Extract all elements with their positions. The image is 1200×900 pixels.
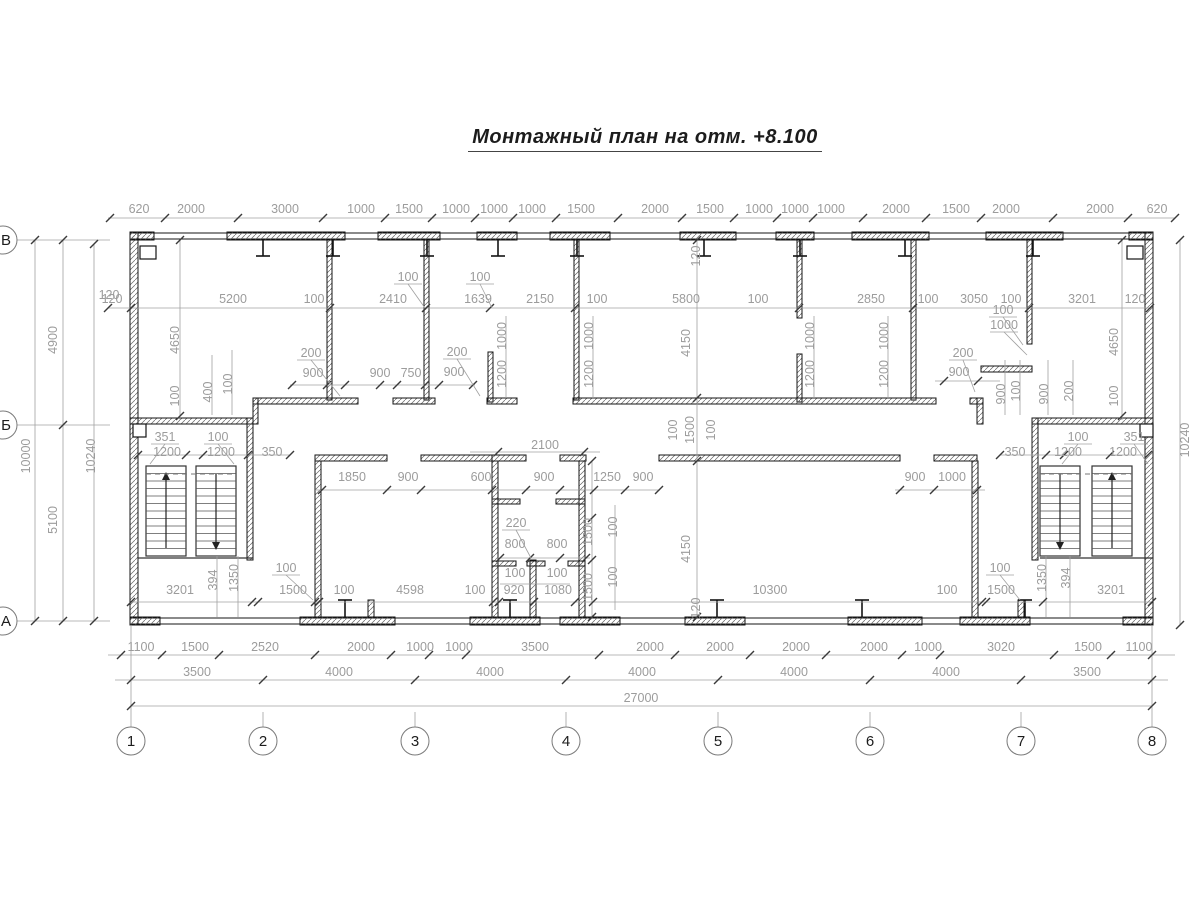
dim-label: 10000	[19, 439, 33, 474]
dim-label: 4598	[396, 583, 424, 597]
dim-label: 2000	[641, 202, 669, 216]
dim-label: 4150	[679, 329, 693, 357]
dim-label: 100	[993, 303, 1014, 317]
dim-label: 1850	[338, 470, 366, 484]
dim-label: 920	[504, 583, 525, 597]
dim-label: 2000	[882, 202, 910, 216]
dim-label: 1200	[1054, 445, 1082, 459]
dim-label: 2150	[526, 292, 554, 306]
dim-label: 27000	[624, 691, 659, 705]
dim-label: 3020	[987, 640, 1015, 654]
dim-label: 200	[953, 346, 974, 360]
dim-label: 3201	[1097, 583, 1125, 597]
dim-label: 1000	[817, 202, 845, 216]
dim-label: 1200	[803, 360, 817, 388]
dim-label: 1200	[495, 360, 509, 388]
dim-label: 100	[587, 292, 608, 306]
dim-label: 900	[949, 365, 970, 379]
dim-label: 1100	[1126, 640, 1153, 654]
dim-label: 4650	[168, 326, 182, 354]
dim-label: 1500	[683, 416, 697, 444]
dim-label: 1250	[593, 470, 621, 484]
dim-label: 1500	[567, 202, 595, 216]
dim-label: 1000	[803, 322, 817, 350]
dim-label: 2000	[347, 640, 375, 654]
dim-label: 100	[168, 386, 182, 407]
dim-label: 2850	[857, 292, 885, 306]
dim-label: 4000	[325, 665, 353, 679]
dim-label: 100	[990, 561, 1011, 575]
dim-label: 900	[994, 384, 1008, 405]
dim-label: 1100	[128, 640, 155, 654]
dim-label: 3500	[183, 665, 211, 679]
dim-label: 5200	[219, 292, 247, 306]
dim-label: 1000	[990, 318, 1018, 332]
axis-bubble-label: 7	[1017, 733, 1025, 750]
dim-label: 351	[1124, 430, 1145, 444]
dim-label: 900	[534, 470, 555, 484]
dim-label: 100	[465, 583, 486, 597]
dim-label: 120	[689, 598, 703, 619]
dim-label: 100	[606, 517, 620, 538]
dim-label: 100	[704, 420, 718, 441]
dim-label: 1000	[877, 322, 891, 350]
dim-label: 100	[606, 567, 620, 588]
dim-label: 4650	[1107, 328, 1121, 356]
dim-label: 1500	[942, 202, 970, 216]
dim-label: 100	[334, 583, 355, 597]
dim-label: 5800	[672, 292, 700, 306]
dim-label: 1200	[877, 360, 891, 388]
dim-label: 100	[547, 566, 568, 580]
dim-label: 100	[304, 292, 325, 306]
axis-bubble-label: 6	[866, 733, 874, 750]
dim-label: 1000	[745, 202, 773, 216]
dim-label: 100	[470, 270, 491, 284]
dim-label: 120	[99, 288, 120, 302]
dim-label: 1350	[227, 564, 241, 592]
axis-bubble-label: 2	[259, 733, 267, 750]
axis-bubble-label: В	[1, 232, 11, 249]
dim-label: 100	[276, 561, 297, 575]
dim-label: 1000	[442, 202, 470, 216]
dim-label: 220	[506, 516, 527, 530]
dim-label: 2410	[379, 292, 407, 306]
dim-label: 3201	[1068, 292, 1096, 306]
dim-label: 1000	[914, 640, 942, 654]
dim-label: 2000	[177, 202, 205, 216]
dim-label: 800	[505, 537, 526, 551]
dim-label: 100	[1107, 386, 1121, 407]
dim-label: 620	[1147, 202, 1168, 216]
axis-bubble-label: 5	[714, 733, 722, 750]
dim-label: 1639	[464, 292, 492, 306]
dim-label: 100	[505, 566, 526, 580]
dim-label: 900	[370, 366, 391, 380]
dim-label: 1000	[938, 470, 966, 484]
dim-label: 1500	[696, 202, 724, 216]
axis-bubble-label: 3	[411, 733, 419, 750]
dim-label: 900	[444, 365, 465, 379]
dim-label: 1200	[207, 445, 235, 459]
dim-label: 1500	[581, 573, 595, 601]
dim-label: 620	[129, 202, 150, 216]
dim-label: 100	[918, 292, 939, 306]
dim-label: 900	[1037, 384, 1051, 405]
dim-label: 10240	[84, 439, 98, 474]
dim-label: 3201	[166, 583, 194, 597]
dim-label: 3050	[960, 292, 988, 306]
dim-label: 800	[547, 537, 568, 551]
dim-label: 1080	[544, 583, 572, 597]
dim-label: 4900	[46, 326, 60, 354]
dim-label: 1200	[1109, 445, 1137, 459]
dim-label: 2000	[992, 202, 1020, 216]
dim-label: 100	[1009, 381, 1023, 402]
dim-label: 1000	[445, 640, 473, 654]
dim-label: 5100	[46, 506, 60, 534]
dim-label: 1500	[279, 583, 307, 597]
dim-label: 2000	[706, 640, 734, 654]
dim-label: 2100	[531, 438, 559, 452]
axis-bubble-label: А	[1, 613, 11, 630]
dim-label: 1000	[406, 640, 434, 654]
dim-label: 4000	[780, 665, 808, 679]
dim-label: 120	[1125, 292, 1146, 306]
dim-label: 200	[1062, 381, 1076, 402]
dim-label: 100	[221, 374, 235, 395]
axis-bubble-label: 8	[1148, 733, 1156, 750]
dim-label: 10300	[753, 583, 788, 597]
dim-label: 1000	[480, 202, 508, 216]
dim-label: 1000	[347, 202, 375, 216]
dim-label: 200	[447, 345, 468, 359]
dim-label: 1500	[1074, 640, 1102, 654]
dim-label: 100	[748, 292, 769, 306]
dim-label: 1000	[495, 322, 509, 350]
dim-label: 200	[301, 346, 322, 360]
dim-label: 3000	[271, 202, 299, 216]
dim-label: 1000	[582, 322, 596, 350]
axis-bubble-label: 4	[562, 733, 570, 750]
dim-label: 4000	[628, 665, 656, 679]
dim-label: 600	[471, 470, 492, 484]
dim-label: 750	[401, 366, 422, 380]
dim-label: 900	[905, 470, 926, 484]
dim-label: 10240	[1178, 423, 1192, 458]
dim-label: 2000	[1086, 202, 1114, 216]
dim-label: 350	[262, 445, 283, 459]
dim-label: 3500	[1073, 665, 1101, 679]
dim-label: 900	[303, 366, 324, 380]
dim-label: 1500	[987, 583, 1015, 597]
floor-plan-canvas: 6202000300010001500100010001000150020001…	[0, 0, 1200, 900]
dim-label: 394	[1059, 568, 1073, 589]
dim-label: 100	[208, 430, 229, 444]
dim-label: 394	[206, 570, 220, 591]
dim-label: 2520	[251, 640, 279, 654]
dim-label: 100	[398, 270, 419, 284]
dim-label: 100	[937, 583, 958, 597]
dim-label: 400	[201, 382, 215, 403]
dim-label: 1200	[153, 445, 181, 459]
drawing-sheet: Монтажный план на отм. +8.100	[0, 0, 1200, 900]
dim-label: 1000	[781, 202, 809, 216]
axis-bubble-label: Б	[1, 417, 11, 434]
dim-label: 2000	[782, 640, 810, 654]
dim-label: 120	[689, 246, 703, 267]
dim-label: 100	[666, 420, 680, 441]
dim-label: 350	[1005, 445, 1026, 459]
dim-label: 1500	[395, 202, 423, 216]
dimension-labels-layer: 6202000300010001500100010001000150020001…	[19, 202, 1192, 705]
axis-bubble-label: 1	[127, 733, 135, 750]
dim-label: 4000	[932, 665, 960, 679]
dim-label: 1500	[181, 640, 209, 654]
dim-label: 1000	[518, 202, 546, 216]
dim-label: 100	[1068, 430, 1089, 444]
dim-label: 900	[633, 470, 654, 484]
dim-label: 1200	[582, 360, 596, 388]
dim-label: 1500	[581, 518, 595, 546]
dim-label: 351	[155, 430, 176, 444]
dim-label: 2000	[636, 640, 664, 654]
dim-label: 3500	[521, 640, 549, 654]
dim-label: 900	[398, 470, 419, 484]
dim-label: 1350	[1035, 564, 1049, 592]
dim-label: 4150	[679, 535, 693, 563]
dim-label: 2000	[860, 640, 888, 654]
dim-label: 4000	[476, 665, 504, 679]
